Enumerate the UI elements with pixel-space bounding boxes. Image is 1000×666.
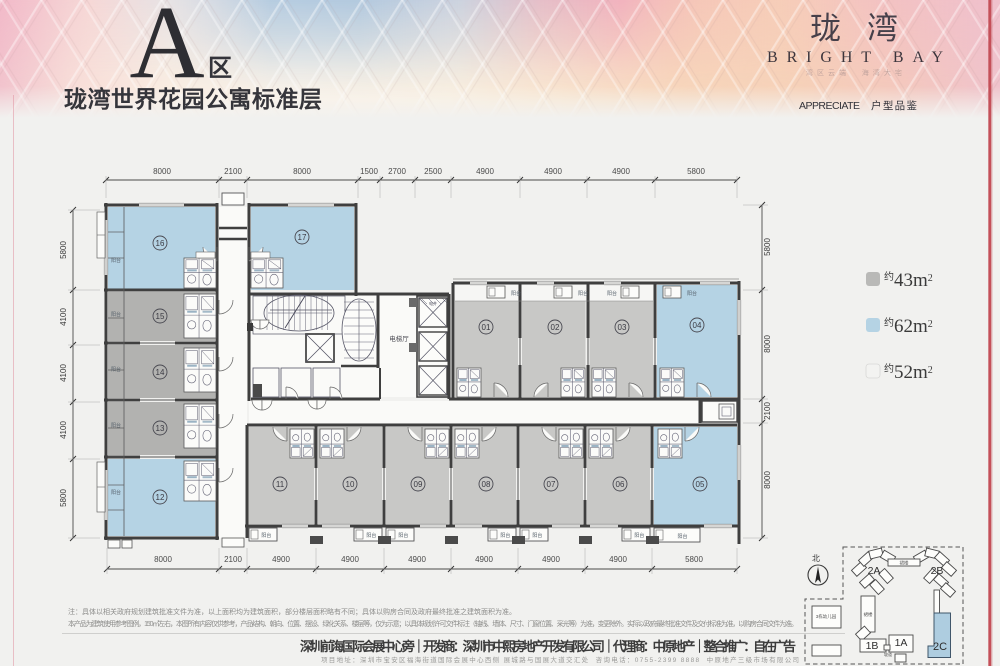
- svg-text:5800: 5800: [59, 241, 68, 259]
- svg-text:约52m2: 约52m2: [884, 362, 933, 383]
- svg-text:04: 04: [693, 321, 702, 330]
- svg-text:阳台: 阳台: [634, 532, 644, 539]
- svg-text:5800: 5800: [59, 489, 68, 507]
- svg-text:阳台: 阳台: [111, 311, 121, 318]
- svg-text:07: 07: [547, 480, 556, 489]
- svg-text:2A: 2A: [868, 565, 881, 577]
- svg-text:15: 15: [156, 312, 165, 321]
- svg-text:4900: 4900: [612, 167, 630, 176]
- svg-text:06: 06: [616, 480, 625, 489]
- svg-text:阳台: 阳台: [678, 533, 688, 540]
- svg-text:8000: 8000: [293, 167, 311, 176]
- svg-text:阳台: 阳台: [398, 532, 408, 539]
- svg-text:阳台: 阳台: [511, 290, 521, 297]
- svg-text:2100: 2100: [224, 555, 242, 564]
- svg-text:珑 湾: 珑 湾: [810, 11, 898, 46]
- svg-text:约43m2: 约43m2: [884, 270, 933, 291]
- svg-text:03: 03: [618, 323, 627, 332]
- svg-text:阳台: 阳台: [111, 257, 121, 264]
- svg-text:4900: 4900: [544, 167, 562, 176]
- svg-text:阳台: 阳台: [366, 532, 376, 539]
- svg-text:2B: 2B: [931, 565, 944, 577]
- svg-text:02: 02: [551, 323, 560, 332]
- svg-text:阳台: 阳台: [532, 532, 542, 539]
- svg-text:4900: 4900: [408, 555, 426, 564]
- svg-text:珑湾世界花园公寓标准层: 珑湾世界花园公寓标准层: [64, 86, 323, 112]
- svg-text:5800: 5800: [763, 238, 772, 256]
- svg-text:13: 13: [156, 424, 165, 433]
- svg-text:17: 17: [298, 233, 307, 242]
- svg-text:阳台: 阳台: [578, 290, 588, 297]
- svg-text:4900: 4900: [341, 555, 359, 564]
- svg-text:阳台: 阳台: [111, 422, 121, 429]
- svg-text:2100: 2100: [763, 402, 772, 420]
- svg-text:2700: 2700: [388, 167, 406, 176]
- svg-text:8000: 8000: [154, 555, 172, 564]
- svg-text:电梯厅: 电梯厅: [389, 334, 409, 343]
- svg-text:5800: 5800: [687, 167, 705, 176]
- svg-text:阳台: 阳台: [500, 532, 510, 539]
- svg-text:电井: 电井: [429, 300, 437, 306]
- svg-text:阳台: 阳台: [111, 489, 121, 496]
- svg-text:本产品为建筑使用参考图例，150㎡左右，本图所有内容仅供参考: 本产品为建筑使用参考图例，150㎡左右，本图所有内容仅供参考，产品结构、朝向、位…: [68, 619, 798, 628]
- svg-text:A: A: [129, 0, 204, 100]
- svg-text:10: 10: [346, 480, 355, 489]
- svg-text:阳台: 阳台: [261, 532, 271, 539]
- svg-text:阳台: 阳台: [607, 290, 617, 297]
- svg-text:1A: 1A: [895, 637, 908, 649]
- svg-text:05: 05: [696, 480, 705, 489]
- svg-text:08: 08: [482, 480, 491, 489]
- svg-text:14: 14: [156, 368, 165, 377]
- svg-text:阳台: 阳台: [687, 290, 697, 297]
- svg-text:2500: 2500: [424, 167, 442, 176]
- svg-text:11: 11: [276, 480, 285, 489]
- svg-text:8000: 8000: [763, 471, 772, 489]
- svg-text:09: 09: [414, 480, 423, 489]
- svg-text:8000: 8000: [153, 167, 171, 176]
- svg-text:4900: 4900: [476, 167, 494, 176]
- svg-text:4900: 4900: [609, 555, 627, 564]
- svg-text:约62m2: 约62m2: [884, 316, 933, 337]
- svg-text:项目地址：深圳市宝安区福海街道国际会展中心西侧 展城路与国展: 项目地址：深圳市宝安区福海街道国际会展中心西侧 展城路与国展大道交汇处 咨询电话…: [321, 655, 799, 664]
- svg-text:APPRECIATE: APPRECIATE: [799, 100, 860, 112]
- svg-text:坡道: 坡道: [884, 651, 892, 657]
- svg-text:1500: 1500: [360, 167, 378, 176]
- svg-text:3栋幼儿园: 3栋幼儿园: [816, 613, 837, 620]
- svg-text:4100: 4100: [59, 421, 68, 439]
- svg-text:湾区云端 海湾大宅: 湾区云端 海湾大宅: [806, 68, 906, 77]
- svg-text:2100: 2100: [224, 167, 242, 176]
- svg-text:4100: 4100: [59, 308, 68, 326]
- svg-text:1B: 1B: [866, 640, 879, 652]
- svg-text:阳台: 阳台: [111, 366, 121, 373]
- svg-text:4900: 4900: [475, 555, 493, 564]
- svg-text:4100: 4100: [59, 364, 68, 382]
- svg-text:12: 12: [156, 493, 165, 502]
- svg-text:户型品鉴: 户型品鉴: [871, 99, 918, 112]
- svg-text:4900: 4900: [272, 555, 290, 564]
- svg-text:北: 北: [812, 554, 820, 563]
- svg-text:4900: 4900: [542, 555, 560, 564]
- svg-text:裙楼: 裙楼: [864, 611, 873, 618]
- svg-text:注：具体以相关政府规划建筑批准文件为准，以上面积均为建筑面积: 注：具体以相关政府规划建筑批准文件为准，以上面积均为建筑面积，部分楼层面积略有不…: [68, 607, 516, 616]
- svg-text:8000: 8000: [763, 335, 772, 353]
- svg-text:裙楼: 裙楼: [900, 560, 909, 567]
- svg-text:2C: 2C: [933, 641, 947, 653]
- svg-text:5800: 5800: [685, 555, 703, 564]
- svg-text:区: 区: [208, 55, 232, 82]
- svg-text:01: 01: [482, 323, 491, 332]
- svg-text:深圳·前海·国际会展中心旁 ｜ 开发商：深圳市中熙房地产开发: 深圳·前海·国际会展中心旁 ｜ 开发商：深圳市中熙房地产开发有限公司 ｜ 代理商…: [300, 639, 796, 654]
- svg-text:16: 16: [156, 239, 165, 248]
